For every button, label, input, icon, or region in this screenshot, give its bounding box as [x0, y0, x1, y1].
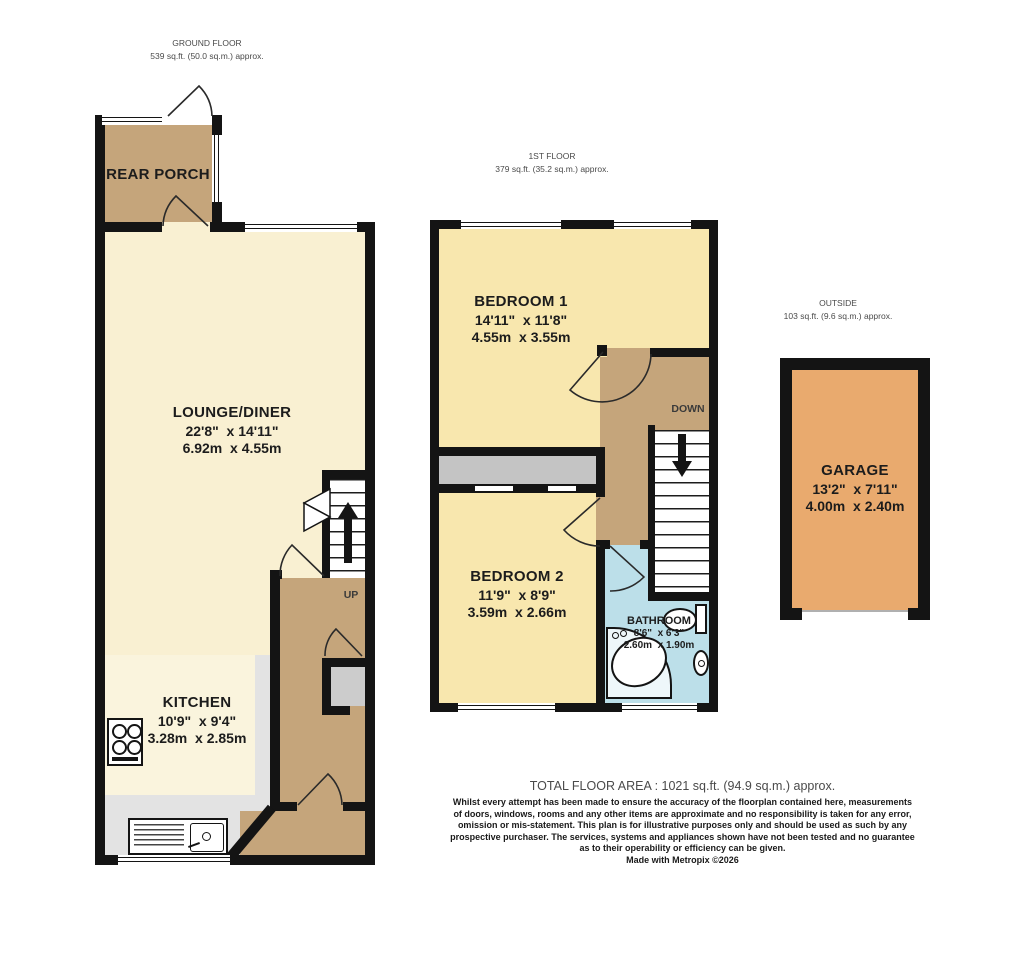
disclaimer-line: prospective purchaser. The services, sys… [400, 832, 965, 844]
door-arc [163, 196, 208, 226]
door-arc [570, 352, 651, 402]
disclaimer-line: omission or mis-statement. This plan is … [400, 820, 965, 832]
stair-break-icon [304, 489, 330, 531]
total-floor-area: TOTAL FLOOR AREA : 1021 sq.ft. (94.9 sq.… [400, 779, 965, 793]
disclaimer-line: Whilst every attempt has been made to en… [400, 797, 965, 809]
door-arc [168, 86, 212, 116]
disclaimer-line: of doors, windows, rooms and any other i… [400, 809, 965, 821]
credit: Made with Metropix ©2026 [400, 855, 965, 867]
door-arc [325, 629, 362, 656]
disclaimer-line: as to their operability or efficiency ca… [400, 843, 965, 855]
footer: TOTAL FLOOR AREA : 1021 sq.ft. (94.9 sq.… [400, 779, 965, 866]
floorplan-canvas: GROUND FLOOR 539 sq.ft. (50.0 sq.m.) app… [0, 0, 1024, 956]
door-arc [298, 774, 342, 805]
door-arc [610, 546, 644, 591]
door-arc [280, 545, 324, 576]
door-arc [564, 498, 600, 546]
